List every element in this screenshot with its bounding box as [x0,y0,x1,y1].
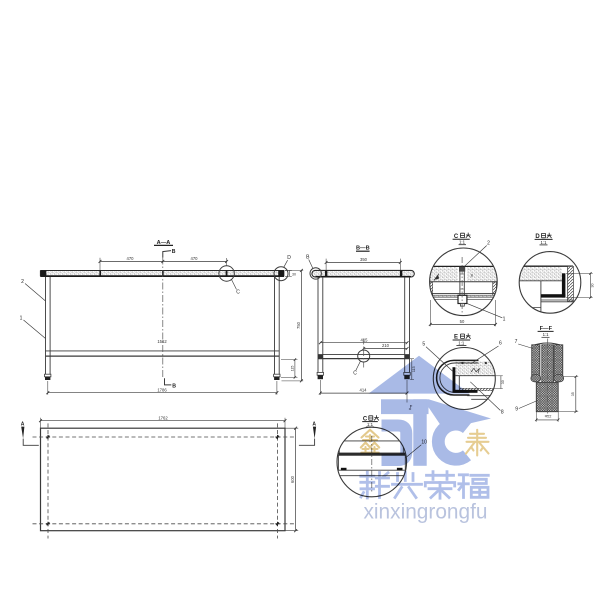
svg-text:7: 7 [515,339,518,345]
svg-text:30: 30 [501,380,505,384]
svg-text:2: 2 [487,240,490,246]
svg-text:xinxingrongfu: xinxingrongfu [364,500,488,524]
svg-text:1: 1 [20,316,23,322]
svg-text:1: 1 [503,317,506,323]
svg-text:470: 470 [191,256,199,261]
svg-text:D: D [287,255,291,261]
svg-text:1:1: 1:1 [367,422,374,427]
svg-text:C: C [353,371,357,377]
svg-text:30: 30 [292,272,296,276]
svg-text:B: B [172,383,176,389]
svg-text:470: 470 [127,256,135,261]
svg-text:750: 750 [296,321,301,329]
svg-text:2: 2 [21,279,24,285]
svg-text:1:1: 1:1 [459,240,466,245]
svg-text:1:1: 1:1 [543,332,550,337]
svg-text:1786: 1786 [157,387,167,392]
svg-text:50: 50 [460,319,465,324]
svg-text:30: 30 [591,284,595,288]
svg-text:115: 115 [290,366,294,372]
svg-text:350: 350 [360,257,368,262]
svg-text:1762: 1762 [158,415,168,420]
svg-text:B: B [172,249,176,255]
svg-text:600: 600 [290,475,295,483]
svg-text:414: 414 [360,388,368,393]
svg-text:210: 210 [382,343,390,348]
svg-text:1:1: 1:1 [458,340,465,345]
svg-text:Φ22: Φ22 [545,415,552,419]
svg-text:415: 415 [361,337,369,342]
svg-text:5: 5 [422,341,425,347]
svg-text:6: 6 [499,341,502,347]
svg-text:9: 9 [515,407,518,413]
svg-text:1:1: 1:1 [541,240,548,245]
svg-text:8: 8 [471,274,473,278]
svg-text:1562: 1562 [157,339,167,344]
svg-text:C: C [236,290,240,296]
svg-text:B: B [306,255,310,261]
svg-text:8: 8 [501,410,504,416]
svg-text:35: 35 [571,392,575,396]
